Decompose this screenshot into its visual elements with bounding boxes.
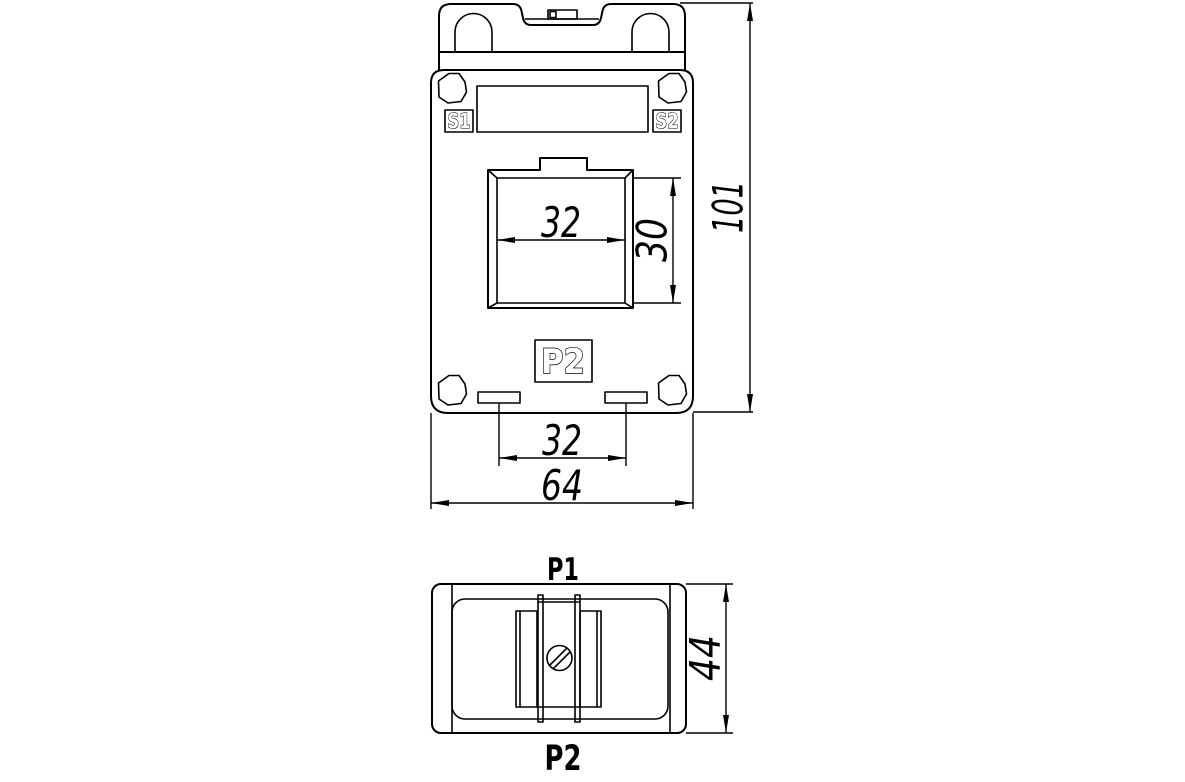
screw-hex-top-right [659,74,687,104]
nameplate [477,86,648,132]
dim-text-window-width: 32 [541,198,581,247]
top-view-core-outline [452,599,668,719]
front-view: S1 S2 32 30 P2 32 64 [431,3,753,510]
window-chamfer-tr [625,170,633,178]
din-clip-detail [550,12,556,18]
drawing-canvas: S1 S2 32 30 P2 32 64 [0,0,1185,777]
p1-side-label: P1 [547,552,579,588]
dim-text-slot-spacing: 32 [542,416,582,465]
mounting-arch-left [455,14,492,53]
clamp-rail-left [538,595,543,722]
dim-text-depth: 44 [681,635,730,681]
p2-side-label: P2 [545,739,582,777]
screw-hex-bottom-right [659,376,687,406]
clamp-plate-left [516,611,537,707]
technical-drawing: S1 S2 32 30 P2 32 64 [0,0,1185,777]
clamp-plate-right [580,611,601,707]
top-view-outer-outline [432,584,686,733]
p2-front-label: P2 [541,342,585,382]
mounting-arch-right [632,14,669,53]
dim-text-overall-width: 64 [541,461,583,510]
top-view: P1 44 P2 [432,552,733,777]
dim-text-window-height: 30 [628,218,677,262]
screw-hex-top-left [439,74,467,104]
s2-label: S2 [656,109,679,133]
dim-text-overall-height: 101 [704,181,753,233]
clamp-screw [547,646,572,671]
screw-hex-bottom-left [439,376,467,406]
window-chamfer-tl [488,170,497,178]
s1-label: S1 [448,109,471,133]
terminal-slot-right [605,392,647,403]
terminal-slot-left [478,392,520,403]
